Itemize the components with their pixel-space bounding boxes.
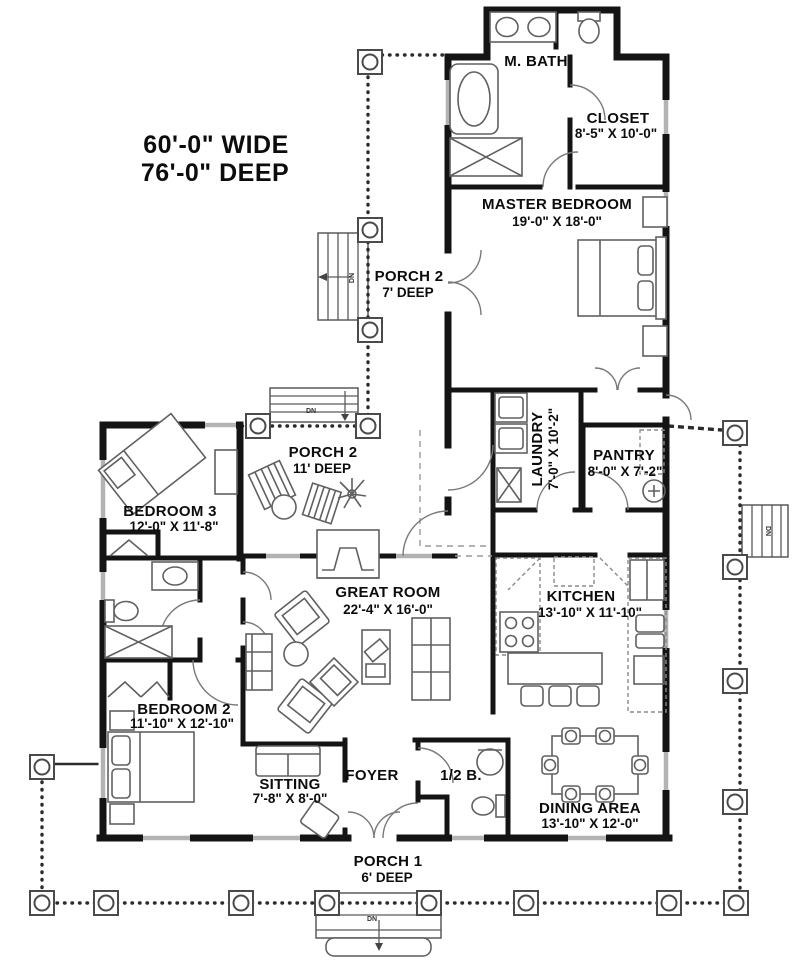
room-label-master: MASTER BEDROOM — [482, 196, 632, 213]
room-label-great-room: GREAT ROOM — [335, 584, 440, 601]
stairs-down-label: DN — [367, 916, 377, 923]
room-dims-laundry: 7'-0" X 10'-2" — [546, 408, 561, 490]
side-table — [284, 642, 308, 666]
nightstand — [110, 804, 134, 824]
nightstand — [643, 326, 667, 356]
room-dims-bedroom2: 11'-10" X 12'-10" — [130, 716, 234, 731]
nightstand — [643, 197, 667, 227]
room-dims-porch1: 6' DEEP — [361, 870, 412, 885]
stool — [521, 686, 543, 706]
plan-width-label: 60'-0" WIDE — [143, 131, 289, 159]
room-label-kitchen: KITCHEN — [547, 588, 616, 605]
room-dims-closet: 8'-5" X 10'-0" — [575, 126, 657, 141]
room-dims-porch2-side: 11' DEEP — [293, 461, 351, 476]
room-dims-dining: 13'-10" X 12'-0" — [541, 816, 638, 831]
plant — [338, 478, 366, 508]
stove — [500, 612, 538, 652]
room-dims-sitting: 7'-8" X 8'-0" — [253, 791, 328, 806]
room-dims-bedroom3: 12'-0" X 11'-8" — [129, 519, 218, 534]
room-label-porch2-rear: PORCH 2 — [375, 268, 444, 285]
stairs-down-label: DN — [306, 408, 316, 415]
room-label-foyer: FOYER — [345, 767, 398, 784]
room-label-half-bath: 1/2 B. — [440, 767, 482, 784]
room-label-pantry: PANTRY — [593, 447, 655, 464]
room-label-laundry: LAUNDRY — [529, 412, 546, 487]
dresser — [215, 450, 237, 494]
rear-porch-stairs — [318, 233, 368, 320]
room-label-mbath: M. BATH — [504, 53, 567, 70]
room-dims-porch2-rear: 7' DEEP — [382, 285, 433, 300]
room-dims-great-room: 22'-4" X 16'-0" — [343, 602, 433, 617]
bifold-door — [108, 682, 169, 697]
floor-plan-drawing: 60'-0" WIDE 76'-0" DEEP M. BATH CLOSET 8… — [0, 0, 800, 966]
kitchen-fixtures — [496, 557, 666, 712]
fireplace — [317, 530, 379, 578]
porch-table — [272, 495, 296, 519]
room-label-porch1: PORCH 1 — [354, 853, 423, 870]
dining-furniture — [542, 728, 648, 802]
laundry-fixtures — [495, 393, 527, 502]
stool — [549, 686, 571, 706]
island — [508, 653, 602, 684]
room-dims-pantry: 8'-0" X 7'-2" — [588, 464, 663, 479]
stairs-down-label: DN — [764, 526, 771, 536]
stairs-down-label: DN — [349, 273, 356, 283]
room-label-porch2-side: PORCH 2 — [289, 444, 358, 461]
side-porch-stairs — [270, 388, 358, 422]
room-label-closet: CLOSET — [587, 110, 650, 127]
room-label-dining: DINING AREA — [539, 800, 641, 817]
room-dims-kitchen: 13'-10" X 11'-10" — [538, 605, 642, 620]
room-label-bedroom3: BEDROOM 3 — [123, 503, 217, 520]
room-dims-master: 19'-0" X 18'-0" — [512, 214, 602, 229]
plan-depth-label: 76'-0" DEEP — [141, 159, 289, 187]
floor-plan-page: 60'-0" WIDE 76'-0" DEEP M. BATH CLOSET 8… — [0, 0, 800, 966]
bifold-door — [110, 540, 148, 556]
stool — [577, 686, 599, 706]
